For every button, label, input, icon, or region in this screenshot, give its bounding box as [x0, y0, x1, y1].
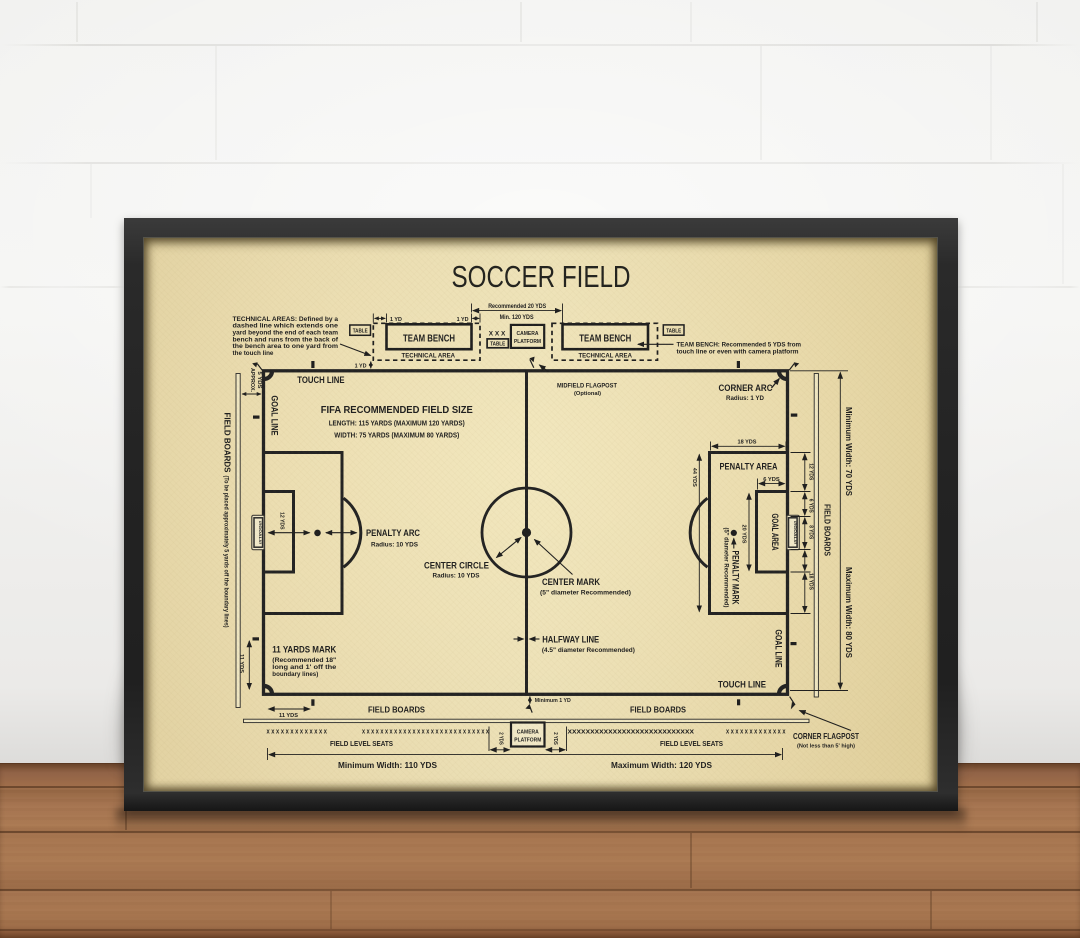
- svg-text:(5" diameter Recommended): (5" diameter Recommended): [722, 528, 729, 608]
- svg-text:FIELD LEVEL SEATS: FIELD LEVEL SEATS: [660, 739, 723, 748]
- svg-text:FIELD BOARDS: FIELD BOARDS: [368, 704, 425, 714]
- svg-text:11 YDS: 11 YDS: [279, 713, 298, 719]
- svg-text:Radius: 1 YD: Radius: 1 YD: [726, 395, 764, 402]
- svg-text:FIELD BOARDS: FIELD BOARDS: [823, 504, 833, 556]
- svg-text:Minimum Width: 110 YDS: Minimum Width: 110 YDS: [338, 760, 437, 770]
- svg-text:PLATFORM: PLATFORM: [514, 339, 541, 345]
- svg-text:12 YDS: 12 YDS: [279, 512, 285, 530]
- svg-text:GOAL AREA: GOAL AREA: [770, 514, 780, 551]
- svg-text:(Not less than 5' high): (Not less than 5' high): [797, 743, 855, 749]
- svg-text:///GOAL///: ///GOAL///: [793, 521, 797, 544]
- svg-text:5 YDS: 5 YDS: [256, 372, 262, 389]
- svg-text:GOAL LINE: GOAL LINE: [270, 396, 280, 436]
- svg-text:Radius: 10 YDS: Radius: 10 YDS: [433, 573, 480, 580]
- svg-text:FIELD LEVEL SEATS: FIELD LEVEL SEATS: [330, 739, 393, 748]
- svg-text:TABLE: TABLE: [353, 328, 368, 334]
- svg-text:PLATFORM: PLATFORM: [514, 737, 541, 743]
- svg-text:TEAM BENCH: TEAM BENCH: [403, 334, 455, 345]
- svg-text:TECHNICAL AREA: TECHNICAL AREA: [578, 353, 632, 360]
- svg-text:Maximum Width: 120 YDS: Maximum Width: 120 YDS: [611, 760, 712, 770]
- svg-text:MIDFIELD FLAGPOST: MIDFIELD FLAGPOST: [557, 382, 617, 389]
- svg-text:12 YDS: 12 YDS: [808, 463, 814, 480]
- svg-text:(5" diameter Recommended): (5" diameter Recommended): [540, 589, 631, 596]
- svg-text:FIELD BOARDS: FIELD BOARDS: [630, 704, 686, 714]
- svg-text:TOUCH LINE: TOUCH LINE: [297, 375, 344, 385]
- svg-text:x x x x x x x x x x x x x: x x x x x x x x x x x x x: [726, 728, 786, 735]
- svg-text:APPROX.: APPROX.: [249, 368, 255, 392]
- svg-text:FIELD BOARDS(To be placed appr: FIELD BOARDS(To be placed approximately …: [223, 413, 233, 628]
- svg-text:TEAM BENCH: TEAM BENCH: [579, 334, 631, 345]
- svg-text:1 YD: 1 YD: [390, 317, 402, 323]
- svg-text:FIFA RECOMMENDED FIELD SIZE: FIFA RECOMMENDED FIELD SIZE: [321, 405, 473, 416]
- svg-text:TABLE: TABLE: [666, 328, 681, 334]
- svg-text:LENGTH: 115 YARDS (MAXIMUM 120: LENGTH: 115 YARDS (MAXIMUM 120 YARDS): [329, 419, 466, 427]
- svg-text:xxxxxxxxxxxxxxxxxxxxxxxxxxxx: xxxxxxxxxxxxxxxxxxxxxxxxxxxx: [568, 728, 695, 735]
- svg-text:Recommended 20 YDS: Recommended 20 YDS: [488, 303, 546, 310]
- svg-text:18 YDS: 18 YDS: [808, 573, 814, 590]
- svg-text:Maximum Width: 80 YDS: Maximum Width: 80 YDS: [844, 567, 854, 658]
- svg-text:Minimum 1 YD: Minimum 1 YD: [535, 698, 571, 704]
- svg-text:8 YDS: 8 YDS: [808, 525, 814, 539]
- svg-text:6 YDS: 6 YDS: [763, 477, 780, 483]
- svg-text:TOUCH LINE: TOUCH LINE: [718, 680, 766, 690]
- svg-text:x x x x x x x x x x x x x x x: x x x x x x x x x x x x x x x x x x x x …: [362, 728, 489, 735]
- svg-text:11 YDS: 11 YDS: [238, 654, 244, 673]
- svg-text:CORNER FLAGPOST: CORNER FLAGPOST: [793, 731, 860, 741]
- svg-text:the touch line: the touch line: [233, 350, 274, 357]
- svg-text:PENALTY AREA: PENALTY AREA: [720, 461, 779, 471]
- svg-text:///GOAL///: ///GOAL///: [258, 521, 262, 544]
- svg-text:X X X: X X X: [489, 331, 506, 337]
- svg-text:SOCCER FIELD: SOCCER FIELD: [452, 259, 631, 294]
- svg-text:1 YD: 1 YD: [457, 317, 469, 323]
- svg-text:CAMERA: CAMERA: [517, 730, 539, 736]
- svg-text:(Recommended 18": (Recommended 18": [272, 657, 336, 664]
- svg-text:x x x x x x x x x x x x x: x x x x x x x x x x x x x: [267, 728, 328, 735]
- svg-text:WIDTH: 75 YARDS (MAXIMUM 80 YA: WIDTH: 75 YARDS (MAXIMUM 80 YARDS): [334, 431, 460, 439]
- svg-text:6 YDS: 6 YDS: [808, 499, 814, 513]
- svg-text:PENALTY MARK: PENALTY MARK: [731, 551, 741, 606]
- svg-text:18 YDS: 18 YDS: [738, 440, 757, 446]
- svg-text:Minimum Width: 70 YDS: Minimum Width: 70 YDS: [844, 407, 854, 496]
- svg-text:PENALTY ARC: PENALTY ARC: [366, 528, 421, 538]
- svg-text:44 YDS: 44 YDS: [691, 468, 697, 487]
- svg-text:Min. 120 YDS: Min. 120 YDS: [500, 314, 534, 321]
- svg-text:TEAM BENCH: Recommended 5 YDS: TEAM BENCH: Recommended 5 YDS from: [677, 341, 802, 348]
- svg-text:HALFWAY LINE: HALFWAY LINE: [542, 634, 599, 644]
- svg-text:CENTER CIRCLE: CENTER CIRCLE: [424, 560, 489, 570]
- svg-text:2 YDS: 2 YDS: [498, 732, 504, 745]
- svg-text:GOAL LINE: GOAL LINE: [774, 630, 784, 668]
- svg-text:20 YDS: 20 YDS: [741, 525, 747, 544]
- svg-text:Radius: 10 YDS: Radius: 10 YDS: [371, 541, 418, 548]
- svg-text:touch line or even with camera: touch line or even with camera platform: [677, 349, 799, 356]
- svg-text:TABLE: TABLE: [490, 342, 505, 348]
- svg-text:CORNER ARC: CORNER ARC: [719, 383, 774, 393]
- svg-text:TECHNICAL AREA: TECHNICAL AREA: [402, 353, 456, 360]
- svg-text:2 YDS: 2 YDS: [552, 732, 558, 745]
- svg-text:1 YD: 1 YD: [355, 364, 367, 370]
- svg-text:CAMERA: CAMERA: [517, 331, 539, 337]
- svg-text:boundary lines): boundary lines): [272, 671, 318, 678]
- svg-text:long and 1' off the: long and 1' off the: [272, 664, 337, 671]
- svg-text:(Optional): (Optional): [574, 391, 601, 397]
- svg-text:11 YARDS MARK: 11 YARDS MARK: [272, 644, 337, 654]
- svg-text:(4.5" diameter Recommended): (4.5" diameter Recommended): [542, 647, 635, 654]
- svg-text:CENTER MARK: CENTER MARK: [542, 577, 601, 587]
